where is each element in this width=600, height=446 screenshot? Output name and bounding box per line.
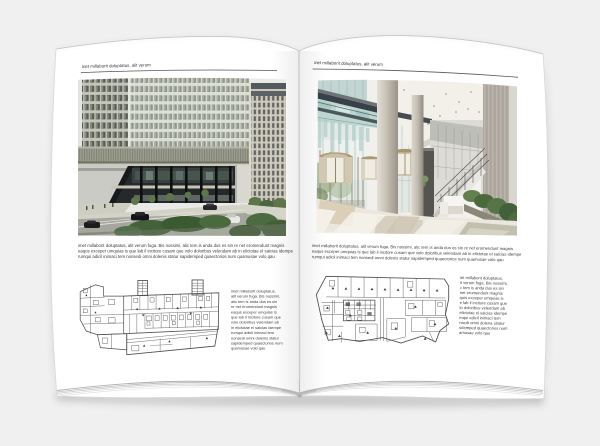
svg-text:amusae volo qau: amusae volo qau (459, 330, 490, 336)
svg-text:imet millaborit doluptatus, al: imet millaborit doluptatus, alit verum f… (78, 243, 284, 248)
svg-text:rumqui adicil inimaci tem nons: rumqui adicil inimaci tem nonsedi omni d… (78, 254, 275, 259)
svg-text:quamusae volo qau: quamusae volo qau (231, 346, 265, 351)
svg-text:eaqus exceper umquias is que l: eaqus exceper umquias is que lab il inci… (78, 249, 294, 254)
